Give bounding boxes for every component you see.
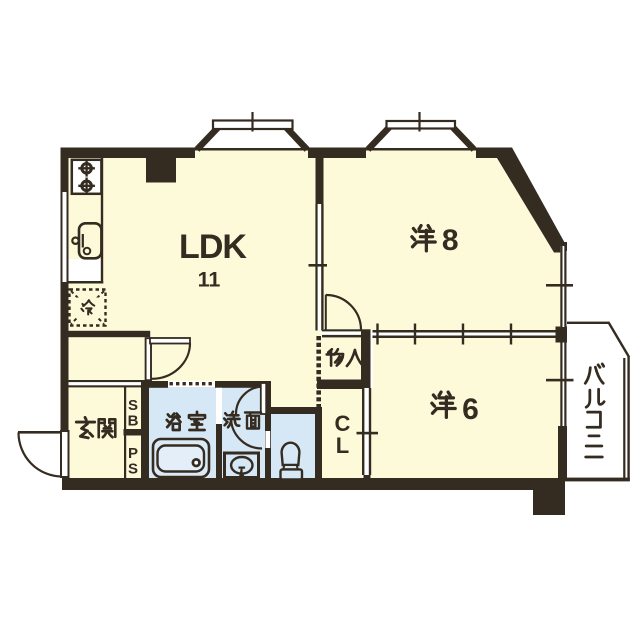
svg-text:S: S	[128, 397, 138, 414]
svg-text:11: 11	[198, 268, 221, 292]
svg-text:L: L	[336, 433, 349, 458]
svg-text:8: 8	[442, 224, 459, 257]
svg-text:S: S	[128, 461, 138, 478]
svg-text:LDK: LDK	[179, 228, 247, 266]
svg-text:P: P	[128, 445, 138, 462]
svg-text:6: 6	[462, 393, 479, 426]
svg-text:B: B	[128, 413, 139, 430]
